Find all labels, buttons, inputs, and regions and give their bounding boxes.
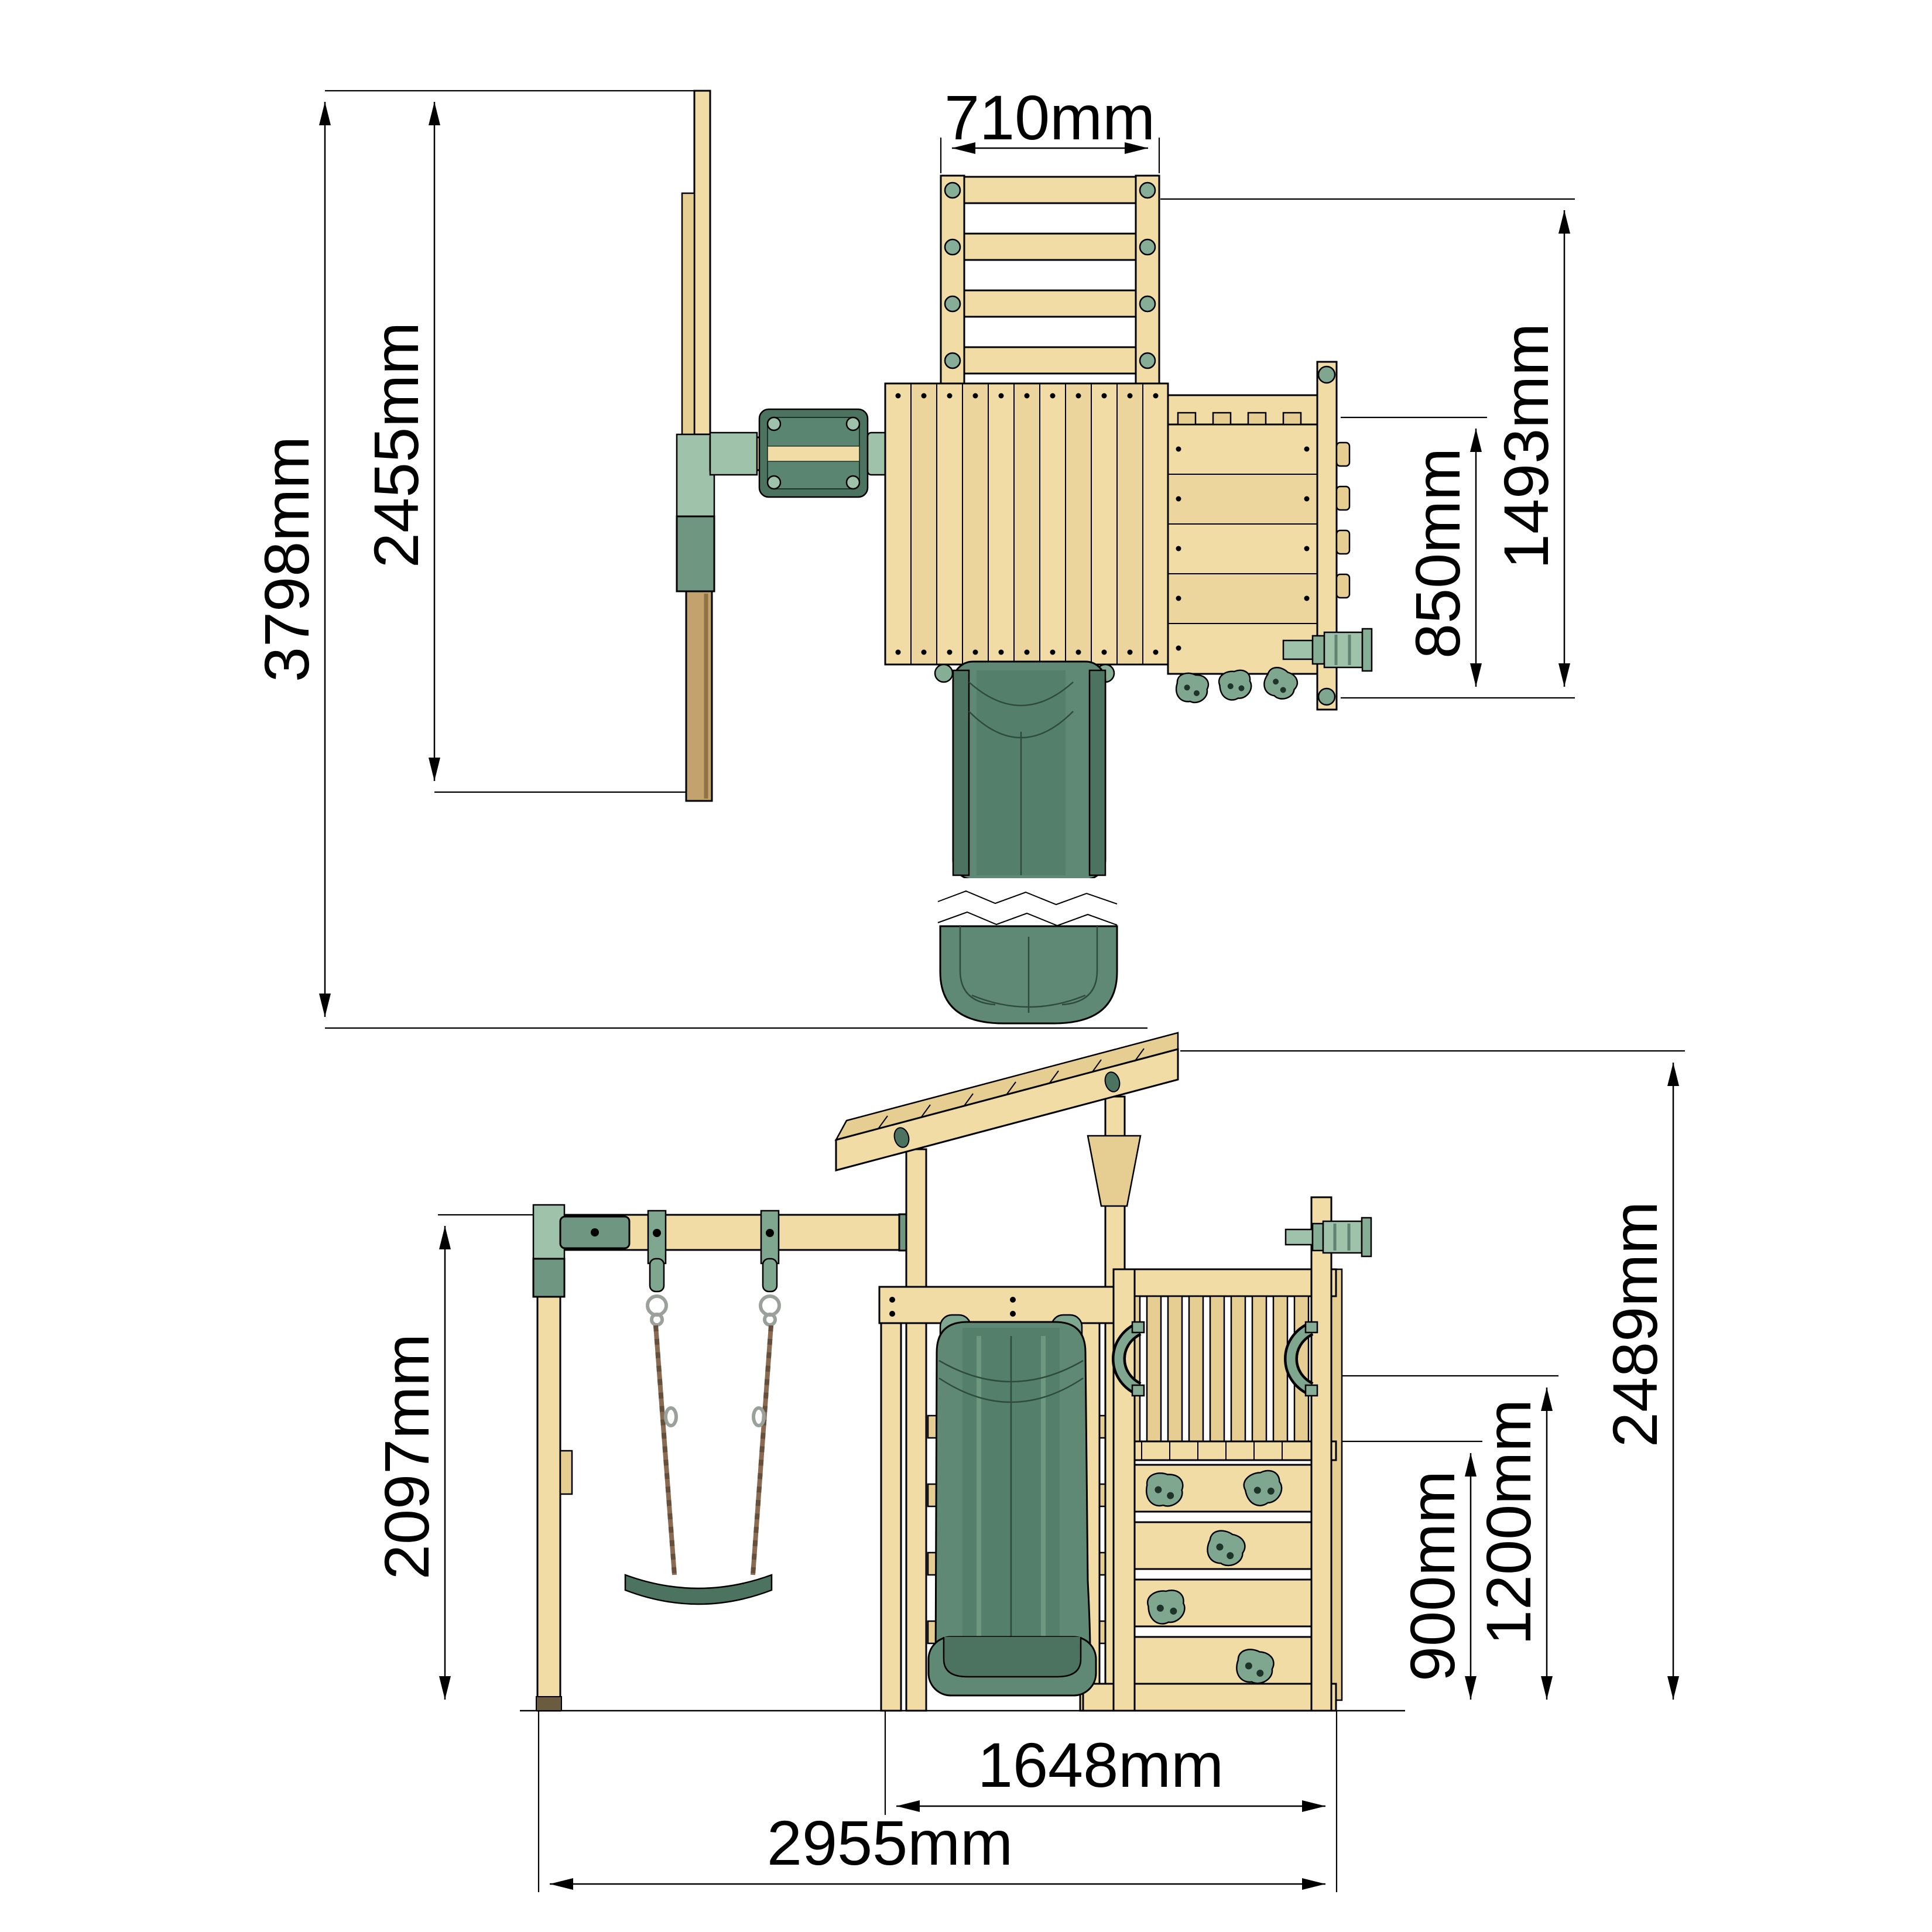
platform-deck-edge xyxy=(1114,1441,1336,1460)
glider-plan xyxy=(759,409,868,497)
swing-frame xyxy=(533,1205,924,1711)
swing-assembly xyxy=(625,1211,779,1604)
dim-overall-depth: 3798mm xyxy=(251,102,325,1017)
dim-wall-height: 900mm xyxy=(1397,1453,1471,1700)
climbing-wall xyxy=(1135,1465,1311,1687)
dim-overall-height: 2489mm xyxy=(1599,1063,1673,1700)
wall-bolt-cap xyxy=(1318,366,1335,383)
railing-balusters xyxy=(1126,1296,1308,1443)
slide-exit xyxy=(929,1637,1096,1695)
wall-bolt-cap xyxy=(1318,688,1335,705)
swing-seat xyxy=(625,1575,772,1604)
platform-side xyxy=(1083,1197,1371,1711)
dim-label-swing-depth: 2455mm xyxy=(361,322,431,568)
slide-break xyxy=(936,878,1119,926)
swing-post xyxy=(537,1297,560,1711)
wall-clips-plan xyxy=(1337,443,1349,598)
slide-end-plan xyxy=(940,926,1117,1023)
dim-label-platform-height: 1200mm xyxy=(1473,1399,1544,1645)
swing-hanger-right xyxy=(761,1211,779,1325)
beam-bracket-plan xyxy=(710,433,757,475)
dim-label-ladder-width: 710mm xyxy=(944,82,1155,153)
dim-label-swing-height: 2097mm xyxy=(371,1334,442,1580)
slide-side xyxy=(929,1315,1096,1695)
ladder-bolt-caps xyxy=(945,183,1155,368)
side-view: 2097mm xyxy=(371,1033,1685,1892)
deck-plan xyxy=(885,383,1168,682)
dim-swing-depth: 2455mm xyxy=(361,102,434,781)
dim-label-platform-depth: 850mm xyxy=(1402,448,1473,659)
wall-back-board xyxy=(1331,1269,1342,1700)
dim-overall-length: 2955mm xyxy=(550,1807,1325,1884)
dim-label-platform-overall-depth: 1493mm xyxy=(1491,323,1561,569)
swing-beam-plan xyxy=(710,409,898,497)
ladder-plan xyxy=(941,176,1159,385)
swing-post-cap-bracket xyxy=(533,1205,564,1297)
tower-post xyxy=(906,1149,926,1711)
dim-swing-height: 2097mm xyxy=(371,1226,445,1700)
dim-tower-length: 1648mm xyxy=(896,1729,1325,1806)
drawing-canvas: 3798mm 2455mm 710mm 850mm 1493mm xyxy=(0,0,1932,1932)
dim-platform-height: 1200mm xyxy=(1473,1388,1547,1700)
swing-post-foot xyxy=(536,1697,561,1711)
wall-post-right xyxy=(1311,1197,1331,1711)
tower-top-rail xyxy=(879,1287,1133,1323)
dim-label-overall-height: 2489mm xyxy=(1599,1201,1670,1447)
dim-platform-depth: 850mm xyxy=(1402,429,1476,687)
dim-platform-overall-depth: 1493mm xyxy=(1491,210,1564,687)
slide-plan xyxy=(936,662,1119,1023)
dim-label-overall-length: 2955mm xyxy=(767,1807,1013,1878)
dim-label-overall-depth: 3798mm xyxy=(251,436,322,682)
ladder-rungs xyxy=(964,177,1136,374)
swing-post-block xyxy=(560,1451,572,1494)
railing-top-rail xyxy=(1114,1269,1336,1296)
dim-label-wall-height: 900mm xyxy=(1397,1471,1468,1681)
tower-post xyxy=(881,1287,901,1711)
swing-post-plan xyxy=(677,91,714,801)
swing-hanger-left xyxy=(648,1211,666,1325)
swing-ropes xyxy=(656,1325,771,1575)
roof-support-wedge xyxy=(1088,1136,1140,1206)
playset-dimension-drawing: 3798mm 2455mm 710mm 850mm 1493mm xyxy=(0,0,1932,1932)
telescope-side xyxy=(1286,1218,1371,1256)
dim-label-tower-length: 1648mm xyxy=(978,1729,1224,1800)
swing-post-bracket-plan xyxy=(677,434,714,591)
top-view: 3798mm 2455mm 710mm 850mm 1493mm xyxy=(251,82,1575,1028)
dim-ladder-width: 710mm xyxy=(944,82,1155,153)
slide-bolt-cap xyxy=(935,664,953,682)
